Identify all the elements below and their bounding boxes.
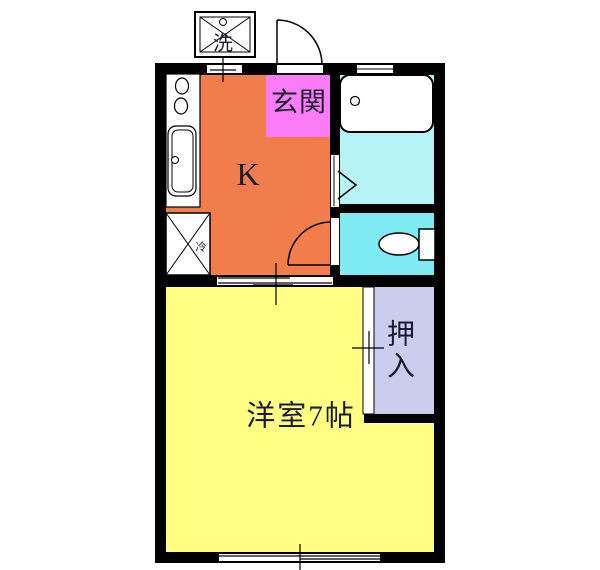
bathtub-drain-icon	[351, 97, 360, 106]
opening-toilet-door	[331, 218, 339, 265]
opening-entrance-door	[277, 65, 323, 73]
kitchen-label: K	[236, 158, 259, 190]
toilet-bowl	[379, 233, 419, 255]
sink-drain-icon	[172, 157, 179, 164]
entrance-label: 玄関	[271, 90, 327, 117]
bathtub-icon	[340, 75, 433, 132]
entrance-door-arc	[277, 20, 322, 65]
wall-left	[155, 63, 166, 563]
living-room-label: 洋室7帖	[246, 403, 356, 432]
stove-burner-2-icon	[175, 98, 188, 114]
kitchen-counter	[166, 74, 200, 207]
toilet-tank	[419, 229, 435, 260]
stove-burner-1-icon	[176, 78, 189, 94]
rooms	[166, 74, 434, 552]
washing-machine-label: 洗	[213, 34, 233, 54]
refrigerator-label: 冷	[196, 243, 207, 254]
closet-label: 押入	[384, 319, 412, 383]
wall-bath-toilet	[330, 204, 445, 213]
floor-plan-drawing	[0, 0, 600, 570]
washer-faucet-icon	[220, 19, 227, 26]
opening-bath-door	[331, 155, 339, 207]
floor-plan: 洗 玄関 K 冷 洋室7帖 押入	[0, 0, 600, 570]
wall-closet-bottom	[364, 414, 445, 423]
opening-washer-hookup	[207, 65, 242, 73]
wall-right	[434, 63, 445, 563]
